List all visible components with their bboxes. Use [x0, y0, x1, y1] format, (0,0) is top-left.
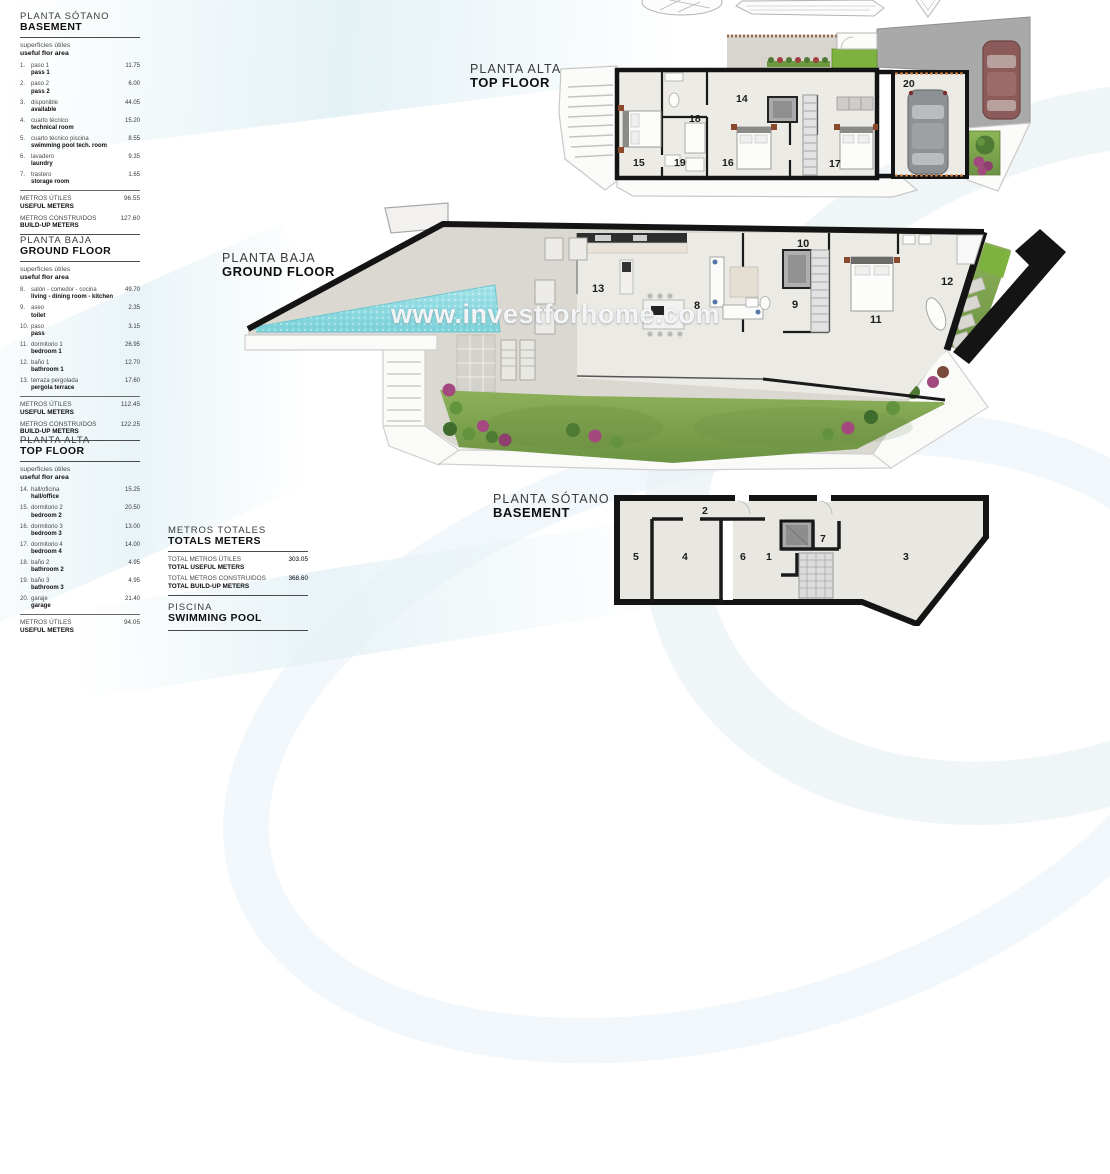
row-number: 2. [20, 81, 31, 95]
room-label-11: 11 [870, 314, 882, 326]
row-number: 10. [20, 324, 31, 338]
room-label-16: 16 [722, 157, 734, 169]
ground-table-title: PLANTA BAJA GROUND FLOOR [20, 236, 140, 258]
totals-row: METROS CONSTRUIDOSBUILD-UP METERS 127.60 [20, 215, 140, 230]
area-row: 1. paso 1pass 1 11.75 [20, 63, 140, 77]
totals-labels: TOTAL METROS ÚTILESTOTAL USEFUL METERS [168, 556, 288, 571]
stairs-icon [799, 553, 833, 598]
row-labels: garajegarage [31, 596, 125, 610]
area-row: 5. cuarto técnico piscinaswimming pool t… [20, 136, 140, 150]
right-deck-garden [967, 123, 1030, 191]
row-number: 4. [20, 118, 31, 132]
area-row: 9. aseotoilet 2.35 [20, 305, 140, 319]
room-label-17: 17 [829, 158, 841, 170]
basement-totals: METROS ÚTILESUSEFUL METERS 96.55 METROS … [20, 195, 140, 230]
top-table-title: PLANTA ALTA TOP FLOOR [20, 436, 140, 458]
area-row: 20. garajegarage 21.40 [20, 596, 140, 610]
row-labels: paso 1pass 1 [31, 63, 125, 77]
totals-value: 127.60 [120, 215, 140, 230]
totals-value: 368.60 [288, 575, 308, 590]
row-number: 12. [20, 360, 31, 374]
totals-value: 112.45 [121, 401, 140, 416]
top-floor-area-table: PLANTA ALTA TOP FLOOR superficies útiles… [20, 436, 140, 639]
room-label-7: 7 [820, 533, 826, 545]
row-value: 20.50 [125, 505, 140, 519]
row-value: 3.15 [128, 324, 140, 338]
stairs-core-icon [811, 250, 829, 332]
divider [168, 595, 308, 596]
row-value: 15.20 [125, 118, 140, 132]
row-value: 6.00 [128, 81, 140, 95]
row-value: 11.75 [125, 63, 140, 77]
totals-value: 122.25 [120, 421, 140, 436]
totals-row: TOTAL METROS CONSTRUIDOSTOTAL BUILD-UP M… [168, 575, 308, 590]
totals-labels: METROS CONSTRUIDOSBUILD-UP METERS [20, 215, 120, 230]
room-label-2: 2 [702, 505, 708, 517]
row-number: 11. [20, 342, 31, 356]
area-row: 10. pasopass 3.15 [20, 324, 140, 338]
divider [168, 551, 308, 552]
row-labels: hall/oficinahall/office [31, 487, 125, 501]
area-row: 3. disponibleavailable 44.05 [20, 100, 140, 114]
room-label-19: 19 [674, 157, 686, 169]
garage-car-icon [908, 90, 948, 174]
row-labels: baño 1bathroom 1 [31, 360, 125, 374]
totals-row: METROS ÚTILESUSEFUL METERS 112.45 [20, 401, 140, 416]
row-number: 1. [20, 63, 31, 77]
lawn-patch [832, 49, 877, 68]
totals-row: METROS CONSTRUIDOSBUILD-UP METERS 122.25 [20, 421, 140, 436]
top-table-subtitle: superficies útiles useful flor area [20, 466, 140, 482]
ground-table-subtitle: superficies útiles useful flor area [20, 266, 140, 282]
row-value: 4.95 [128, 578, 140, 592]
ground-floor-plan-svg: 13 8 9 10 11 12 [243, 202, 1073, 502]
room-label-5: 5 [633, 551, 639, 563]
area-row: 12. baño 1bathroom 1 12.70 [20, 360, 140, 374]
basement-rows: 1. paso 1pass 1 11.75 2. paso 2pass 2 6.… [20, 63, 140, 186]
elevator-icon [783, 250, 811, 288]
divider [20, 37, 140, 38]
row-labels: dormitorio 4bedroom 4 [31, 542, 125, 556]
row-value: 12.70 [125, 360, 140, 374]
closet-room17 [837, 97, 873, 110]
row-labels: baño 2bathroom 2 [31, 560, 128, 574]
area-row: 17. dormitorio 4bedroom 4 14.00 [20, 542, 140, 556]
stairs-core-icon [803, 95, 817, 175]
row-number: 7. [20, 172, 31, 186]
row-number: 17. [20, 542, 31, 556]
bush-icon [976, 136, 995, 155]
divider [20, 614, 140, 615]
totals-row: TOTAL METROS ÚTILESTOTAL USEFUL METERS 3… [168, 556, 308, 571]
totals-row: METROS ÚTILESUSEFUL METERS 94.05 [20, 619, 140, 634]
ground-area-table: PLANTA BAJA GROUND FLOOR superficies úti… [20, 236, 140, 445]
room-label-15: 15 [633, 157, 645, 169]
area-row: 4. cuarto técnicotechnical room 15.20 [20, 118, 140, 132]
row-value: 4.95 [128, 560, 140, 574]
row-value: 21.40 [125, 596, 140, 610]
row-number: 6. [20, 154, 31, 168]
row-value: 8.55 [128, 136, 140, 150]
top-floor-plan-label: PLANTA ALTA TOP FLOOR [470, 63, 561, 90]
divider [20, 261, 140, 262]
room-label-6: 6 [740, 551, 746, 563]
row-number: 8. [20, 287, 31, 301]
area-row: 2. paso 2pass 2 6.00 [20, 81, 140, 95]
totals-labels: METROS ÚTILESUSEFUL METERS [20, 401, 121, 416]
top-floor-plan-svg: 14 15 18 19 16 17 20 [555, 5, 1110, 200]
area-row: 13. terraza pergoladapergola terrace 17.… [20, 378, 140, 392]
room-label-8: 8 [694, 300, 700, 312]
pool-heading: PISCINA SWIMMING POOL [168, 603, 308, 625]
room-label-18: 18 [689, 113, 701, 125]
area-row: 16. dormitorio 3bedroom 3 13.00 [20, 524, 140, 538]
room-label-20: 20 [903, 78, 915, 90]
bed-icon-room15 [618, 105, 661, 153]
row-number: 15. [20, 505, 31, 519]
row-labels: baño 3bathroom 3 [31, 578, 128, 592]
top-totals: METROS ÚTILESUSEFUL METERS 94.05 [20, 619, 140, 634]
row-value: 15.25 [125, 487, 140, 501]
row-number: 19. [20, 578, 31, 592]
totals-labels: METROS CONSTRUIDOSBUILD-UP METERS [20, 421, 120, 436]
row-number: 3. [20, 100, 31, 114]
room-label-10: 10 [797, 238, 809, 250]
totals-title: METROS TOTALES TOTALS METERS [168, 526, 308, 548]
area-row: 6. lavaderolaundry 9.35 [20, 154, 140, 168]
divider [20, 396, 140, 397]
row-value: 2.35 [128, 305, 140, 319]
row-labels: dormitorio 1bedroom 1 [31, 342, 125, 356]
row-number: 13. [20, 378, 31, 392]
basement-table-subtitle: superficies útiles useful flor area [20, 42, 140, 58]
room-label-3: 3 [903, 551, 909, 563]
bed-icon-room16 [731, 124, 777, 169]
basement-plan-label: PLANTA SÓTANO BASEMENT [493, 493, 610, 520]
ground-rows: 8. salón - comedor - cocinaliving - dini… [20, 287, 140, 392]
divider [20, 190, 140, 191]
row-number: 5. [20, 136, 31, 150]
row-value: 1.65 [128, 172, 140, 186]
divider [20, 461, 140, 462]
room-label-12: 12 [941, 276, 953, 288]
area-row: 7. trasterostorage room 1.65 [20, 172, 140, 186]
room-label-4: 4 [682, 551, 688, 563]
room-label-1: 1 [766, 551, 772, 563]
top-rows: 14. hall/oficinahall/office 15.25 15. do… [20, 487, 140, 610]
row-labels: dormitorio 3bedroom 3 [31, 524, 125, 538]
totals-value: 303.05 [288, 556, 308, 571]
totals-value: 94.05 [124, 619, 140, 634]
totals-labels: METROS ÚTILESUSEFUL METERS [20, 619, 124, 634]
totals-row: METROS ÚTILESUSEFUL METERS 96.55 [20, 195, 140, 210]
room-label-14: 14 [736, 93, 748, 105]
area-row: 8. salón - comedor - cocinaliving - dini… [20, 287, 140, 301]
basement-area-table: PLANTA SÓTANO BASEMENT superficies útile… [20, 12, 140, 239]
grand-totals: TOTAL METROS ÚTILESTOTAL USEFUL METERS 3… [168, 556, 308, 591]
totals-meters-block: METROS TOTALES TOTALS METERS TOTAL METRO… [168, 526, 308, 635]
row-labels: paso 2pass 2 [31, 81, 128, 95]
room-label-13: 13 [592, 283, 604, 295]
elevator-icon [781, 521, 813, 549]
row-number: 9. [20, 305, 31, 319]
parked-car-icon [983, 41, 1020, 119]
totals-labels: METROS ÚTILESUSEFUL METERS [20, 195, 124, 210]
row-value: 9.35 [128, 154, 140, 168]
row-labels: salón - comedor - cocinaliving - dining … [31, 287, 125, 301]
room-label-9: 9 [792, 299, 798, 311]
row-labels: disponibleavailable [31, 100, 125, 114]
row-number: 20. [20, 596, 31, 610]
row-labels: aseotoilet [31, 305, 128, 319]
row-value: 17.60 [125, 378, 140, 392]
stone-patio [457, 335, 495, 392]
ground-floor-plan-label: PLANTA BAJA GROUND FLOOR [222, 252, 335, 279]
row-number: 16. [20, 524, 31, 538]
row-number: 14. [20, 487, 31, 501]
area-row: 14. hall/oficinahall/office 15.25 [20, 487, 140, 501]
row-labels: cuarto técnicotechnical room [31, 118, 125, 132]
roof-terrace-strip [727, 33, 877, 68]
row-labels: terraza pergoladapergola terrace [31, 378, 125, 392]
row-value: 13.00 [125, 524, 140, 538]
divider [168, 630, 308, 631]
row-labels: dormitorio 2bedroom 2 [31, 505, 125, 519]
totals-value: 96.55 [124, 195, 140, 210]
row-value: 44.05 [125, 100, 140, 114]
ground-totals: METROS ÚTILESUSEFUL METERS 112.45 METROS… [20, 401, 140, 436]
row-number: 18. [20, 560, 31, 574]
row-labels: trasterostorage room [31, 172, 128, 186]
area-row: 15. dormitorio 2bedroom 2 20.50 [20, 505, 140, 519]
entry-landing [837, 33, 877, 49]
area-row: 19. baño 3bathroom 3 4.95 [20, 578, 140, 592]
basement-plan-svg: 5 4 2 6 1 7 3 [585, 495, 1020, 626]
area-row: 18. baño 2bathroom 2 4.95 [20, 560, 140, 574]
bed-icon-room11 [844, 257, 900, 311]
corridor-opening [723, 521, 733, 600]
row-value: 26.95 [125, 342, 140, 356]
row-value: 14.00 [125, 542, 140, 556]
row-value: 49.70 [125, 287, 140, 301]
row-labels: pasopass [31, 324, 128, 338]
interior-floor [577, 233, 981, 399]
basement-table-title: PLANTA SÓTANO BASEMENT [20, 12, 140, 34]
row-labels: lavaderolaundry [31, 154, 128, 168]
area-row: 11. dormitorio 1bedroom 1 26.95 [20, 342, 140, 356]
totals-labels: TOTAL METROS CONSTRUIDOSTOTAL BUILD-UP M… [168, 575, 288, 590]
elevator-icon [768, 97, 797, 122]
row-labels: cuarto técnico piscinaswimming pool tech… [31, 136, 128, 150]
